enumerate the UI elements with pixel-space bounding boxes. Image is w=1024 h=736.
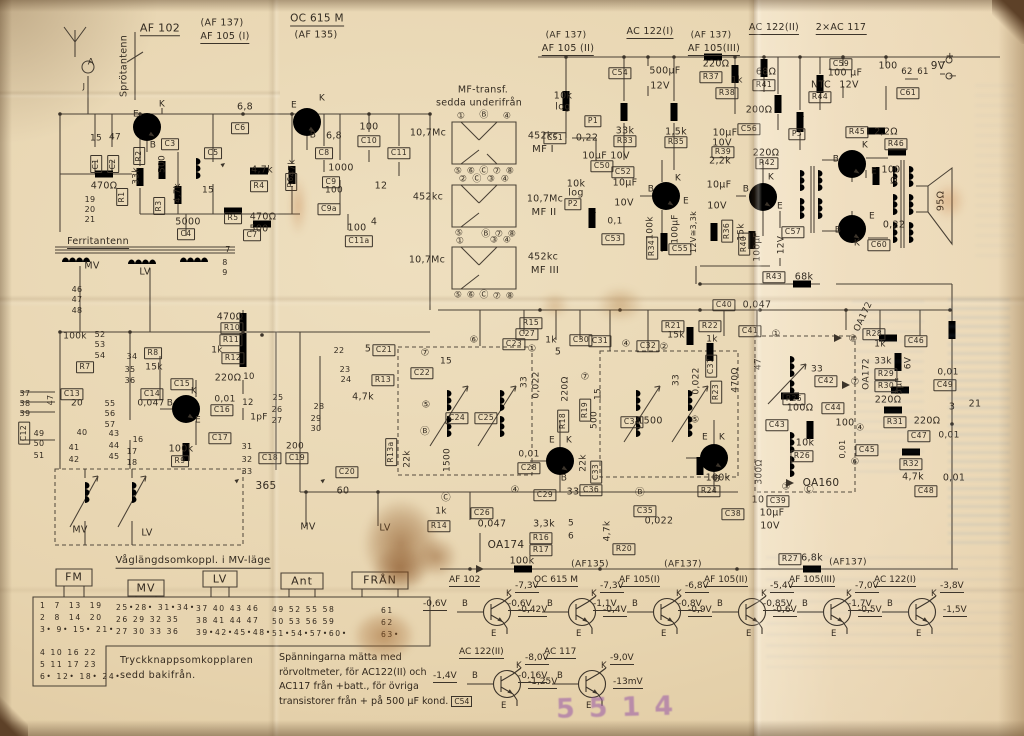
component-designator: C39 xyxy=(766,495,789,507)
schematic-label: ④ xyxy=(511,485,520,495)
switch-contact-numbers: 4 10 16 22 xyxy=(40,648,97,657)
schematic-label: AF 105 (II) xyxy=(542,44,594,56)
schematic-label: ④ xyxy=(622,339,631,349)
component-designator: C31 xyxy=(588,335,611,347)
schematic-label: ⑤ xyxy=(422,400,431,410)
component-designator: C9 xyxy=(322,176,340,188)
schematic-label: 1k xyxy=(731,77,743,86)
schematic-label: ② xyxy=(660,342,669,352)
schematic-label: 10V xyxy=(614,198,634,208)
schematic-label: 20 xyxy=(85,206,96,214)
switch-contact-numbers: 1 7 13 19 xyxy=(40,601,103,610)
component-designator: R23 xyxy=(710,380,722,403)
component-designator: R26 xyxy=(790,450,813,462)
pushbutton-caption-line1: Tryckknappsomkopplaren xyxy=(120,655,253,666)
schematic-label: 48 xyxy=(72,307,83,315)
schematic-label: ③ xyxy=(490,237,498,246)
schematic-label: LV xyxy=(139,267,150,277)
schematic-label: 0,022 xyxy=(645,516,674,526)
schematic-label: 10,7Mc xyxy=(527,194,563,204)
schematic-label: 0,01 xyxy=(839,439,847,458)
base-voltage: -0,6V xyxy=(508,600,532,611)
schematic-label: 17 xyxy=(127,448,138,456)
schematic-label: 33 xyxy=(811,366,823,375)
component-designator: R39 xyxy=(711,146,734,158)
switch-contact-numbers: 50 53 56 59 xyxy=(272,617,336,626)
schematic-label: K xyxy=(675,175,681,184)
component-designator: C32 xyxy=(636,340,659,352)
component-designator: R9 xyxy=(171,455,189,467)
component-designator: C23 xyxy=(502,338,525,350)
schematic-label: 470Ω xyxy=(91,181,118,191)
schematic-label: ③ xyxy=(487,176,495,185)
schematic-label: 44 xyxy=(109,442,120,450)
schematic-label: 15k xyxy=(145,364,163,373)
component-designator: R4 xyxy=(250,180,268,192)
schematic-label: 0,01 xyxy=(518,451,539,460)
schematic-label: 1pF xyxy=(250,414,268,423)
switch-contact-numbers: 5 11 17 23 xyxy=(40,660,97,669)
schematic-label: K xyxy=(862,142,868,151)
switch-contact-numbers: 51•54•57•60• xyxy=(272,629,348,638)
schematic-label: MF II xyxy=(532,208,557,218)
schematic-label: 33 xyxy=(242,468,253,476)
schematic-label: ① xyxy=(457,113,465,122)
schematic-label: OA174 xyxy=(488,540,525,551)
switch-contact-numbers: 2 8 14 20 xyxy=(40,613,103,622)
component-designator: C27 xyxy=(515,328,538,340)
schematic-label: 34 xyxy=(127,353,138,361)
schematic-label: sedda underifrån xyxy=(436,98,522,108)
schematic-label: 16 xyxy=(133,436,144,444)
schematic-label: 452kc xyxy=(528,252,558,262)
schematic-label: 3,3k xyxy=(533,519,555,529)
component-designator: C52 xyxy=(611,166,634,178)
schematic-label: B xyxy=(835,227,841,236)
component-designator: R16 xyxy=(529,532,552,544)
schematic-label: B xyxy=(167,400,173,409)
component-designator: P1 xyxy=(584,115,601,127)
component-designator: R22 xyxy=(698,320,721,332)
schematic-photo: AF 102(AF 137)AF 105 (I)OC 615 M(AF 135)… xyxy=(0,0,1024,736)
schematic-label: 0,022 xyxy=(693,367,702,394)
schematic-label: 4,7k xyxy=(604,521,613,542)
base-voltage: -1,4V xyxy=(433,672,457,683)
schematic-label: 4 xyxy=(371,217,377,227)
component-designator: R13a xyxy=(385,438,397,466)
schematic-label: 10 xyxy=(243,373,254,382)
schematic-label: 12 xyxy=(375,181,388,191)
schematic-label: 15 xyxy=(595,388,604,400)
schematic-label: B xyxy=(150,142,156,151)
schematic-label: K xyxy=(854,240,860,249)
schematic-label: E xyxy=(133,111,139,120)
component-designator: C59 xyxy=(829,58,852,70)
schematic-label: OA160 xyxy=(803,478,840,489)
schematic-label: MV xyxy=(72,525,87,535)
component-designator: C25 xyxy=(474,412,497,424)
base-voltage: -0,8V xyxy=(678,600,702,611)
schematic-label: 46 xyxy=(72,286,83,294)
schematic-label: 100µF xyxy=(672,214,681,244)
component-designator: C50 xyxy=(590,160,613,172)
schematic-label: ③ xyxy=(782,482,791,492)
schematic-label: (AF 137) xyxy=(546,32,587,41)
schematic-label: Ω xyxy=(890,176,898,186)
component-designator: R8 xyxy=(144,347,162,359)
schematic-label: 500µF xyxy=(649,66,680,76)
schematic-label: B xyxy=(561,475,567,484)
schematic-label: 10µF xyxy=(707,180,732,190)
component-designator: R38 xyxy=(715,87,738,99)
schematic-label: 452kc xyxy=(413,192,443,202)
switch-contact-numbers: 25•28• 31•34• xyxy=(116,603,196,612)
component-designator: R35 xyxy=(664,136,687,148)
schematic-label: 40 xyxy=(77,429,88,437)
schematic-label: 200 xyxy=(286,443,304,452)
paper-edge xyxy=(0,0,1024,12)
schematic-label: AF 102 xyxy=(140,22,180,36)
schematic-label: − xyxy=(949,72,958,82)
schematic-label: MV xyxy=(300,522,315,532)
schematic-label: (AF 137) xyxy=(691,32,732,41)
schematic-label: OC 615 M xyxy=(290,14,344,27)
component-designator: C57 xyxy=(781,226,804,238)
notes-line: rörvoltmeter, för AC122(II) och xyxy=(279,667,427,678)
paper-edge xyxy=(0,720,1024,736)
component-designator: R46 xyxy=(884,138,907,150)
schematic-label: 22k xyxy=(580,454,589,472)
schematic-label: 30 xyxy=(311,425,322,433)
schematic-label: 29 xyxy=(311,415,322,423)
schematic-label: 62 xyxy=(901,68,912,77)
schematic-label: ④ xyxy=(501,176,509,185)
schematic-label: 33 xyxy=(673,374,682,386)
component-designator: R15 xyxy=(519,317,542,329)
component-designator: C9a xyxy=(318,203,341,215)
schematic-label: 100k xyxy=(63,333,87,342)
schematic-label: AC 122(I) xyxy=(626,27,673,39)
schematic-label: 51 xyxy=(34,452,45,460)
schematic-label: 31 xyxy=(242,443,253,451)
schematic-label: B xyxy=(648,186,654,195)
component-designator: C34 xyxy=(620,416,643,428)
schematic-label: (AF135) xyxy=(571,561,609,570)
component-designator: R5 xyxy=(224,212,242,224)
schematic-label: 9V xyxy=(931,61,945,72)
schematic-label: 55 xyxy=(105,400,116,408)
schematic-label: B xyxy=(833,156,839,165)
schematic-label: 5000 xyxy=(175,217,200,227)
component-designator: C17 xyxy=(208,432,231,444)
schematic-label: 56 xyxy=(105,410,116,418)
component-designator: R33 xyxy=(613,135,636,147)
schematic-label: log xyxy=(555,102,570,112)
schematic-label: 22k xyxy=(404,450,413,468)
schematic-label: 9 xyxy=(222,269,227,277)
schematic-label: 500 xyxy=(159,155,168,173)
schematic-label: ⑤ xyxy=(691,415,700,425)
schematic-label: 38 xyxy=(20,400,31,408)
schematic-label: 15 xyxy=(202,187,214,196)
schematic-label: AF 105(III) xyxy=(688,44,740,56)
schematic-label: K xyxy=(566,437,572,446)
component-designator: R36 xyxy=(721,219,733,242)
schematic-label: 220Ω xyxy=(215,373,242,383)
component-designator: R1 xyxy=(116,188,128,206)
schematic-label: 18 xyxy=(127,459,138,467)
schematic-label: E xyxy=(702,434,708,443)
schematic-label: 10,7Mc xyxy=(409,255,445,265)
schematic-label: 32 xyxy=(242,456,253,464)
component-designator: C12 xyxy=(18,421,30,444)
base-voltage: -0,16V xyxy=(518,672,547,683)
schematic-label: 1k xyxy=(706,336,718,345)
schematic-label: 10k xyxy=(796,438,815,448)
component-designator: C13 xyxy=(60,388,83,400)
schematic-label: MF I xyxy=(532,145,554,155)
component-designator: R34 xyxy=(646,236,658,259)
stain xyxy=(288,176,308,236)
schematic-label: 100 xyxy=(881,165,900,175)
base-voltage: -1,1V xyxy=(593,600,617,611)
schematic-label: K xyxy=(319,95,325,104)
component-designator: R7 xyxy=(76,361,94,373)
schematic-label: 37 xyxy=(20,390,31,398)
component-designator: R44 xyxy=(808,91,831,103)
component-designator: C37 xyxy=(705,354,717,377)
notes-line: transistorer från + på 500 µF kond. xyxy=(279,696,448,707)
schematic-label: Våglängdsomkoppl. i MV-läge xyxy=(116,556,271,569)
schematic-label: 49 xyxy=(34,430,45,438)
schematic-label: 12V xyxy=(778,236,787,255)
schematic-label: AF 105 (I) xyxy=(200,32,249,44)
table-background-corner xyxy=(0,694,28,736)
schematic-label: 220Ω xyxy=(562,376,571,401)
component-designator: C6 xyxy=(231,122,249,134)
schematic-label: Ferritantenn xyxy=(67,237,129,249)
stain xyxy=(932,182,966,220)
schematic-label: NTC xyxy=(811,80,831,90)
component-designator: C42 xyxy=(814,375,837,387)
schematic-label: E xyxy=(683,198,689,207)
component-designator: C11 xyxy=(387,147,410,159)
schematic-label: ① xyxy=(528,344,537,354)
switch-contact-numbers: 39•42•45•48• xyxy=(196,628,272,637)
stain xyxy=(416,536,458,578)
schematic-label: 33k xyxy=(133,167,142,185)
component-designator: C36 xyxy=(579,484,602,496)
component-designator: C48 xyxy=(914,485,937,497)
schematic-label: 100 xyxy=(347,223,366,233)
component-designator: C22 xyxy=(410,367,433,379)
component-designator: C29 xyxy=(533,489,556,501)
component-designator: R18 xyxy=(557,409,569,432)
schematic-label: Ⓑ xyxy=(479,112,488,121)
component-designator: C35 xyxy=(633,505,656,517)
schematic-label: Ⓑ xyxy=(420,427,430,437)
schematic-label: 100k xyxy=(169,444,194,454)
schematic-label: + xyxy=(946,52,955,62)
schematic-label: 22 xyxy=(334,347,345,355)
component-designator: R17 xyxy=(529,544,552,556)
component-designator: C11a xyxy=(345,235,373,247)
schematic-label: 52 xyxy=(95,331,106,339)
schematic-label: 6 xyxy=(568,533,574,542)
switch-contact-numbers: 37 40 43 46 xyxy=(196,604,260,613)
schematic-label: 15 xyxy=(440,358,452,367)
component-designator: C2 xyxy=(107,155,119,173)
schematic-label: 470Ω xyxy=(732,367,741,392)
component-designator: R45 xyxy=(845,126,868,138)
schematic-label: Ⓑ xyxy=(635,488,645,498)
schematic-label: E xyxy=(195,417,201,426)
schematic-label: 10V xyxy=(707,201,727,211)
component-designator: R12 xyxy=(221,352,244,364)
component-designator: C3 xyxy=(161,138,179,150)
schematic-label: 1k xyxy=(435,508,447,517)
schematic-label: 12V xyxy=(839,80,859,90)
schematic-label: 12V xyxy=(650,81,670,91)
schematic-label: 5 xyxy=(555,347,561,357)
schematic-label: 60 xyxy=(337,486,350,496)
schematic-label: ② xyxy=(459,176,467,185)
component-designator: R10 xyxy=(220,322,243,334)
schematic-label: 15k xyxy=(667,332,685,341)
component-designator: R19 xyxy=(579,398,591,421)
component-designator: C1 xyxy=(90,155,102,173)
schematic-label: 100 xyxy=(359,122,378,132)
component-designator: R20 xyxy=(612,543,635,555)
component-designator: C51 xyxy=(543,132,566,144)
component-designator: P3 xyxy=(788,128,805,140)
schematic-label: 42 xyxy=(69,456,80,464)
schematic-label: 1000 xyxy=(328,163,353,173)
schematic-label: 36 xyxy=(125,377,136,385)
base-voltage: -0,6V xyxy=(423,600,447,611)
schematic-label: 1k xyxy=(545,337,557,346)
component-designator: R11 xyxy=(219,334,242,346)
paper-edge xyxy=(0,0,12,736)
component-designator: C44 xyxy=(821,402,844,414)
switch-contact-numbers: 26 29 32 35 xyxy=(116,615,180,624)
schematic-label: 12 xyxy=(242,399,253,408)
schematic-label: 57 xyxy=(105,421,116,429)
schematic-label: K xyxy=(159,101,165,110)
pushbutton-caption-line2: sedd bakifrån. xyxy=(120,670,196,681)
schematic-label: 68k xyxy=(795,272,814,282)
component-designator: C15 xyxy=(170,378,193,390)
schematic-label: E xyxy=(549,437,555,446)
switch-contact-numbers: 49 52 55 58 xyxy=(272,605,336,614)
schematic-label: Ⓒ xyxy=(441,493,451,503)
schematic-label: 45 xyxy=(109,453,120,461)
schematic-label: A xyxy=(88,59,94,68)
schematic-label: E xyxy=(291,102,297,111)
schematic-label: 24 xyxy=(341,376,352,384)
switch-contact-numbers: 38 41 44 47 xyxy=(196,616,260,625)
schematic-label: 10k xyxy=(554,91,573,101)
schematic-label: ④ xyxy=(503,113,511,122)
schematic-label: K xyxy=(719,434,725,443)
component-designator: C55 xyxy=(668,243,691,255)
schematic-label: K xyxy=(768,174,774,183)
schematic-label: 500 xyxy=(591,411,600,429)
component-designator: C16 xyxy=(210,404,233,416)
component-designator: C60 xyxy=(867,239,890,251)
schematic-label: MF III xyxy=(531,266,559,276)
schematic-label: 35 xyxy=(125,366,136,374)
schematic-label: (AF 135) xyxy=(295,30,338,40)
schematic-label: 0,022 xyxy=(533,371,542,398)
schematic-label: E xyxy=(777,203,783,212)
schematic-label: 1500 xyxy=(444,448,453,472)
schematic-label: 33 xyxy=(567,487,580,497)
switch-contact-numbers: 3• 9• 15• 21• xyxy=(40,625,115,634)
component-designator: C21 xyxy=(372,344,395,356)
schematic-label: B xyxy=(310,132,316,141)
component-designator: R43 xyxy=(762,271,785,283)
stain xyxy=(596,286,644,322)
component-designator: R37 xyxy=(699,71,722,83)
bleed-through-text xyxy=(852,300,924,480)
schematic-label: (AF137) xyxy=(664,561,702,570)
schematic-label: 8 xyxy=(222,259,227,267)
schematic-label: 4,7k xyxy=(174,183,183,203)
notes-line: AC117 från +batt., för övriga xyxy=(279,681,419,692)
schematic-label: 61 xyxy=(917,68,928,77)
schematic-label: ④ xyxy=(503,237,511,246)
schematic-label: E xyxy=(871,168,877,177)
schematic-label: 47 xyxy=(109,134,121,143)
schematic-label: 23 xyxy=(340,366,351,374)
schematic-label: 6,8 xyxy=(237,102,253,112)
schematic-label: 470Ω xyxy=(217,312,244,322)
schematic-label: ① xyxy=(772,329,781,339)
component-designator: C38 xyxy=(721,508,744,520)
schematic-label: 47 xyxy=(47,395,55,406)
schematic-label: 33 xyxy=(521,376,530,388)
schematic-label: 21 xyxy=(85,216,96,224)
paper-crease xyxy=(0,90,280,99)
component-designator: C24 xyxy=(445,412,468,424)
schematic-label: MF-transf. xyxy=(458,85,508,95)
component-designator: C20 xyxy=(335,466,358,478)
schematic-label: ⑦ xyxy=(581,372,590,382)
coffee-stain xyxy=(352,610,416,662)
schematic-label: 5 xyxy=(365,344,371,354)
component-designator: R24 xyxy=(697,485,720,497)
schematic-label: 100 xyxy=(878,61,897,71)
schematic-label: MV xyxy=(84,261,99,271)
band-button-label: LV xyxy=(213,573,227,586)
schematic-label: 4,7k xyxy=(352,392,374,402)
band-button-label: FM xyxy=(65,571,83,584)
schematic-label: Sprötantenn xyxy=(119,35,129,97)
component-designator: C5 xyxy=(204,147,222,159)
schematic-label: 50 xyxy=(34,440,45,448)
component-designator: C26 xyxy=(470,507,493,519)
paper-crease xyxy=(268,0,280,736)
schematic-label: 100k xyxy=(510,556,535,566)
component-designator: C10 xyxy=(357,135,380,147)
schematic-label: 0,047 xyxy=(137,400,164,409)
schematic-label: 6,8 xyxy=(326,131,342,141)
schematic-label: 39 xyxy=(20,410,31,418)
stain xyxy=(540,292,570,318)
schematic-label: 10µF xyxy=(613,178,638,188)
schematic-label: 10V xyxy=(760,521,780,531)
